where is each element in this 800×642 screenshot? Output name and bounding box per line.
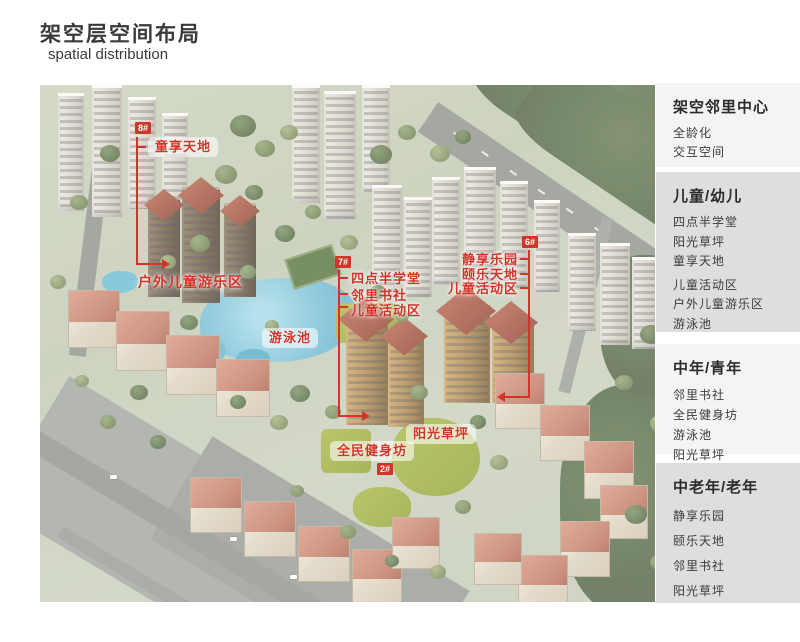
label-leisure-land: 颐乐天地 (460, 267, 518, 282)
sidebar-item-list: 静享乐园 颐乐天地 邻里书社 阳光草坪 (673, 504, 792, 604)
tree (430, 145, 450, 162)
tree (270, 415, 288, 430)
label-fitness: 全民健身坊 (330, 441, 414, 461)
tree (180, 315, 198, 330)
leader-tick (340, 293, 348, 295)
sidebar-section-seniors: 中老年/老年 静享乐园 颐乐天地 邻里书社 阳光草坪 (656, 463, 800, 603)
sidebar-item: 邻里书社 (673, 554, 792, 579)
low-rise-building (392, 517, 440, 569)
tower-building (432, 177, 460, 285)
tower-building (292, 85, 320, 203)
tree (340, 235, 358, 250)
tree (70, 195, 88, 210)
tree (398, 125, 416, 140)
label-pool: 游泳池 (262, 328, 318, 348)
tree (100, 415, 116, 429)
leader-line-8 (136, 137, 138, 265)
label-outdoor-play: 户外儿童游乐区 (138, 275, 243, 290)
leader-arrow-8 (162, 259, 175, 269)
leader-arrow-7 (362, 411, 375, 421)
tree (75, 375, 89, 387)
tree (130, 385, 148, 400)
low-rise-building (116, 311, 170, 371)
tree (290, 485, 304, 497)
low-rise-building (540, 405, 590, 461)
tree (190, 235, 210, 252)
car (290, 575, 297, 579)
tree (430, 565, 446, 579)
leader-tick (520, 258, 528, 260)
leader-tick (520, 273, 528, 275)
tree (455, 130, 471, 144)
tree (370, 145, 392, 164)
sidebar-item: 童享天地 (673, 252, 792, 272)
label-study-hall: 四点半学堂 (351, 271, 421, 286)
low-rise-building (474, 533, 522, 585)
label-quiet-garden: 静享乐园 (460, 252, 518, 267)
tree (230, 395, 246, 409)
low-rise-building (518, 555, 568, 602)
sidebar-section-title: 中老年/老年 (673, 476, 792, 497)
leader-arrow-6 (492, 392, 505, 402)
sports-court (284, 244, 341, 290)
low-rise-building (216, 359, 270, 417)
leader-tick (340, 306, 348, 308)
label-kids-zone-6: 儿童活动区 (446, 281, 518, 296)
tree (410, 385, 428, 400)
label-book-club: 邻里书社 (351, 288, 407, 303)
low-rise-building (190, 477, 242, 533)
tree (625, 505, 647, 524)
sidebar-item: 阳光草坪 (673, 233, 792, 253)
sidebar-item: 儿童活动区 (673, 276, 792, 296)
label-tongxiang: 童享天地 (148, 137, 218, 157)
masterplan-aerial-image: 8# 童享天地 户外儿童游乐区 7# 四点半学堂 邻里书社 儿童活动区 6# 静… (40, 85, 655, 602)
sidebar-item-list: 邻里书社 全民健身坊 游泳池 阳光草坪 (673, 385, 792, 465)
sidebar-item: 四点半学堂 (673, 213, 792, 233)
leader-tick (340, 277, 348, 279)
tower-building (324, 91, 356, 219)
sidebar-section-title: 中年/青年 (673, 357, 792, 378)
sidebar-section-title: 架空邻里中心 (673, 96, 792, 117)
low-rise-building (244, 501, 296, 557)
leader-tick (138, 146, 146, 148)
sidebar-section-children: 儿童/幼儿 四点半学堂 阳光草坪 童享天地 儿童活动区 户外儿童游乐区 游泳池 (656, 172, 800, 332)
car (230, 537, 237, 541)
sidebar-item-list: 全龄化 交互空间 (673, 124, 792, 162)
building-tag-2: 2# (377, 463, 393, 475)
building-tag-7: 7# (335, 256, 351, 268)
tree (100, 145, 120, 162)
sidebar-item: 游泳池 (673, 425, 792, 445)
sidebar-section-title: 儿童/幼儿 (673, 185, 792, 206)
sidebar-section-neighborhood-center: 架空邻里中心 全龄化 交互空间 (656, 83, 800, 167)
leader-tick (520, 287, 528, 289)
tree (255, 140, 275, 157)
sidebar-item: 阳光草坪 (673, 445, 792, 465)
tree (275, 225, 295, 242)
aerial-scene (40, 85, 655, 602)
car (110, 475, 117, 479)
sidebar-item: 户外儿童游乐区 (673, 295, 792, 315)
low-rise-building (166, 335, 220, 395)
tree (245, 185, 263, 200)
tower-building (600, 243, 630, 345)
sidebar-item: 邻里书社 (673, 385, 792, 405)
sidebar-section-youth: 中年/青年 邻里书社 全民健身坊 游泳池 阳光草坪 (656, 344, 800, 454)
tower-building (58, 93, 84, 211)
sidebar-item: 阳光草坪 (673, 579, 792, 604)
slide: { "header": { "title_zh": "架空层空间布局", "ti… (0, 0, 800, 642)
label-sun-lawn: 阳光草坪 (406, 424, 476, 444)
building-tag-6: 6# (522, 236, 538, 248)
tree (305, 205, 321, 219)
tree (490, 455, 508, 470)
leader-line-7h (340, 415, 362, 417)
tree (290, 385, 310, 402)
tree (150, 435, 166, 449)
tree (230, 115, 256, 137)
tree (455, 500, 471, 514)
sidebar-item: 全龄化 (673, 124, 792, 143)
sidebar-item: 游泳池 (673, 315, 792, 335)
leader-line-6 (528, 250, 530, 398)
tree (340, 525, 356, 539)
sidebar-item: 交互空间 (673, 143, 792, 162)
building-tag-8: 8# (135, 122, 151, 134)
tree (640, 325, 655, 344)
page-title: 架空层空间布局 (40, 18, 201, 48)
sidebar-item: 颐乐天地 (673, 529, 792, 554)
tower-building (568, 233, 596, 331)
leader-line-8h (138, 263, 162, 265)
tree (385, 555, 399, 567)
tree (50, 275, 66, 289)
tower-building (362, 85, 390, 193)
tree (215, 165, 237, 184)
sidebar-item-list: 四点半学堂 阳光草坪 童享天地 儿童活动区 户外儿童游乐区 游泳池 (673, 213, 792, 334)
sidebar-item: 静享乐园 (673, 504, 792, 529)
sidebar-item: 全民健身坊 (673, 405, 792, 425)
low-rise-building (68, 290, 120, 348)
label-kids-zone-7: 儿童活动区 (351, 303, 421, 318)
page-subtitle: spatial distribution (48, 46, 168, 63)
